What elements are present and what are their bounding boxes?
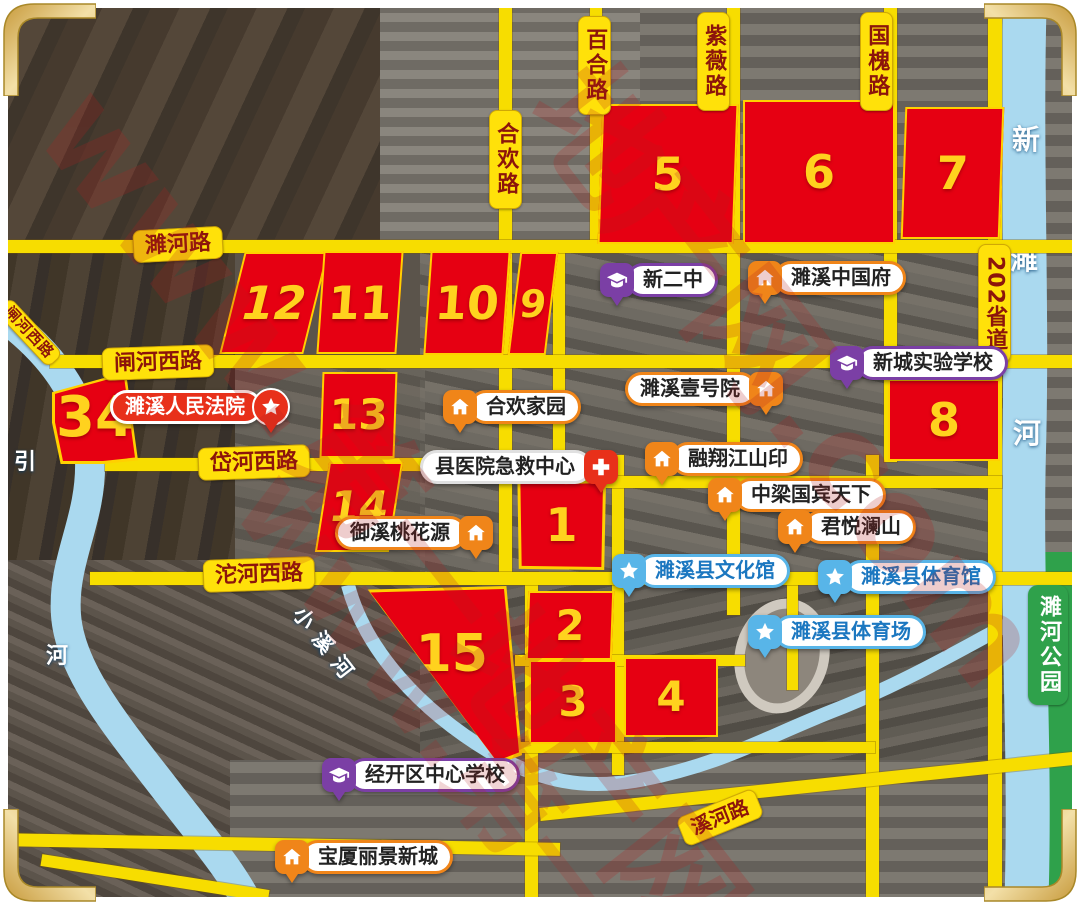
parcel-4: 4 bbox=[624, 657, 718, 737]
label-road-suihe: 濉河路 bbox=[132, 226, 224, 264]
poi-suixi-zhongguofu: 濉溪中国府 bbox=[748, 261, 906, 295]
graduation-cap-icon bbox=[830, 346, 864, 380]
gold-corner-ornament bbox=[984, 809, 1080, 905]
star-icon bbox=[748, 615, 782, 649]
label-road-baihe: 百合路 bbox=[578, 16, 611, 115]
parcel-5: 5 bbox=[598, 104, 739, 244]
home-icon bbox=[708, 478, 742, 512]
poi-rongxiang-jiangshanyin: 融翔江山印 bbox=[645, 442, 803, 476]
map-canvas: 5 6 7 12 11 10 9 13 14 8 2 3 4 34 1 15 合… bbox=[8, 8, 1072, 897]
home-icon bbox=[459, 516, 493, 550]
poi-county-culture-center: 濉溪县文化馆 bbox=[612, 554, 790, 588]
parcel-8: 8 bbox=[888, 379, 1000, 461]
riverside-park-label: 濉河公园 bbox=[1028, 585, 1068, 705]
home-icon bbox=[645, 442, 679, 476]
poi-xinerzhong: 新二中 bbox=[600, 263, 718, 297]
poi-county-stadium: 濉溪县体育场 bbox=[748, 615, 926, 649]
gold-corner-ornament bbox=[0, 809, 96, 905]
label-road-zhahexi: 闸河西路 bbox=[101, 344, 214, 381]
poi-hehuan-jiayuan: 合欢家园 bbox=[443, 390, 581, 424]
parcel-3: 3 bbox=[529, 660, 617, 744]
star-icon bbox=[252, 388, 290, 426]
gold-corner-ornament bbox=[984, 0, 1080, 96]
star-icon bbox=[818, 560, 852, 594]
star-icon bbox=[612, 554, 646, 588]
yin-river-char-he: 河 bbox=[46, 638, 68, 670]
gold-corner-ornament bbox=[0, 0, 96, 96]
poi-junyue-lanshan: 君悦澜山 bbox=[778, 510, 916, 544]
cross-icon bbox=[584, 450, 618, 484]
annotated-satellite-map: { "watermark": { "line1": "www.第一地产网", "… bbox=[0, 0, 1080, 905]
poi-county-gymnasium: 濉溪县体育馆 bbox=[818, 560, 996, 594]
poi-renmin-fayuan: 濉溪人民法院 bbox=[110, 388, 290, 426]
label-road-tuohexi: 沱河西路 bbox=[202, 556, 315, 593]
label-road-ziwei: 紫薇路 bbox=[697, 12, 730, 111]
poi-county-hospital-emergency: 县医院急救中心 bbox=[420, 450, 618, 484]
parcel-11: 11 bbox=[316, 251, 403, 354]
poi-yuxi-taohuayuan: 御溪桃花源 bbox=[335, 516, 493, 550]
poi-suixi-yihaoyuan: 濉溪壹号院 bbox=[625, 372, 783, 406]
graduation-cap-icon bbox=[600, 263, 634, 297]
parcel-2: 2 bbox=[526, 591, 614, 660]
home-icon bbox=[443, 390, 477, 424]
yin-river-char-yin: 引 bbox=[14, 444, 36, 476]
parcel-13: 13 bbox=[319, 372, 397, 458]
xinsui-river-char-he: 河 bbox=[1013, 412, 1041, 452]
poi-jingkaiqu-central-school: 经开区中心学校 bbox=[322, 758, 520, 792]
graduation-cap-icon bbox=[322, 758, 356, 792]
home-icon bbox=[748, 261, 782, 295]
xinsui-river-char-xin: 新 bbox=[1012, 118, 1040, 158]
poi-xincheng-shiyan-school: 新城实验学校 bbox=[830, 346, 1008, 380]
home-icon bbox=[749, 372, 783, 406]
label-road-hehuan: 合欢路 bbox=[489, 110, 522, 209]
home-icon bbox=[275, 840, 309, 874]
label-road-guohuai: 国槐路 bbox=[860, 12, 893, 111]
poi-baosha-lijing-xincheng: 宝厦丽景新城 bbox=[275, 840, 453, 874]
home-icon bbox=[778, 510, 812, 544]
parcel-10: 10 bbox=[423, 251, 510, 355]
label-road-daihexi: 岱河西路 bbox=[197, 444, 310, 481]
poi-zhongliang-guobin-tianxia: 中梁国宾天下 bbox=[708, 478, 886, 512]
parcel-6: 6 bbox=[743, 100, 895, 244]
parcel-7: 7 bbox=[901, 107, 1005, 239]
